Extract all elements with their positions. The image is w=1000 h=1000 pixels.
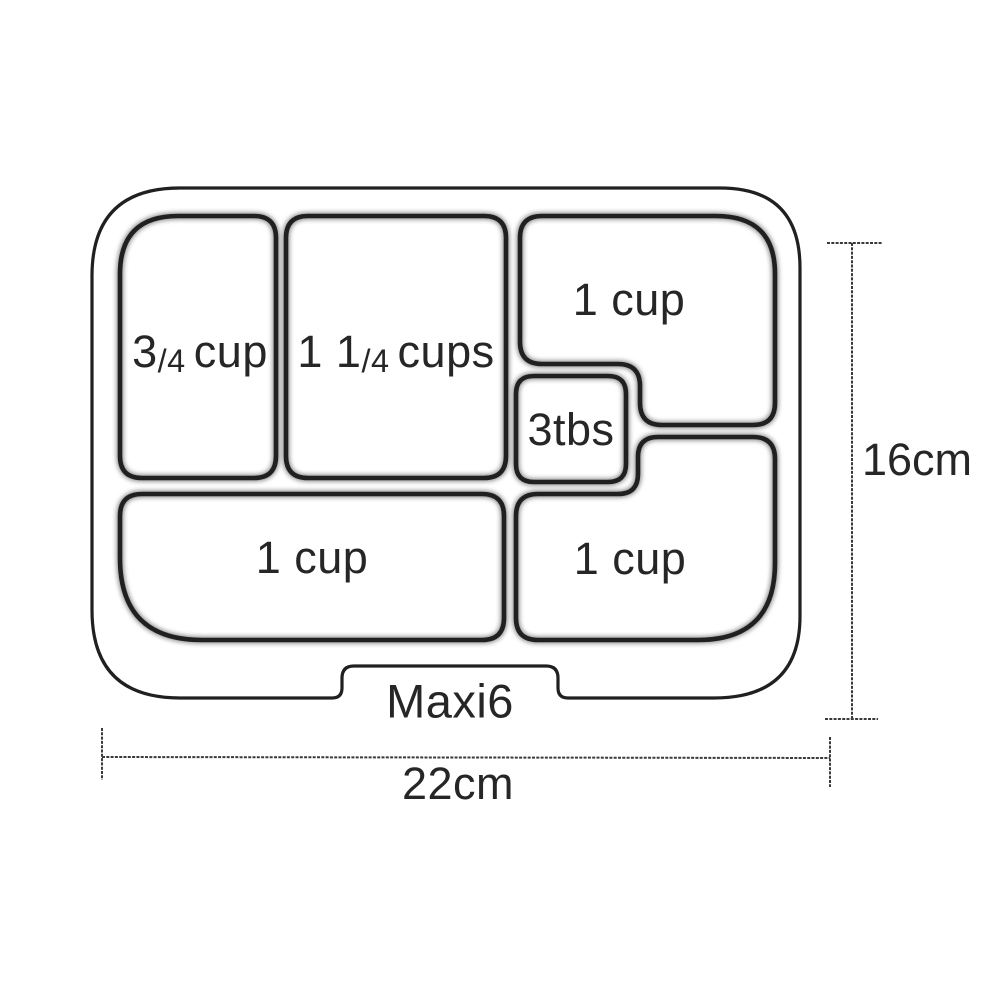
compartment-label-top-middle: 1 1/4cups [297,326,494,378]
compartment-label-top-right: 1 cup [573,274,686,326]
label-fraction: /4 [361,343,389,379]
label-whole: 3 [132,326,158,377]
product-model-label: Maxi6 [386,674,514,729]
compartment-label-bottom-right: 1 cup [574,533,687,585]
label-fraction: /4 [158,343,186,379]
compartment-label-bottom-left: 1 cup [256,532,369,584]
tray-diagram-svg [0,0,1000,1000]
compartment-label-small: 3tbs [527,404,614,456]
label-unit: cups [398,326,495,377]
diagram-canvas: 3/4cup 1 1/4cups 1 cup 3tbs 1 cup 1 cup … [0,0,1000,1000]
width-dimension-label: 22cm [402,758,514,810]
tray-outline-shape [92,188,800,698]
label-whole: 1 1 [297,326,361,377]
label-unit: cup [194,326,268,377]
height-dimension-label: 16cm [862,434,972,486]
compartment-label-top-left: 3/4cup [132,326,268,378]
